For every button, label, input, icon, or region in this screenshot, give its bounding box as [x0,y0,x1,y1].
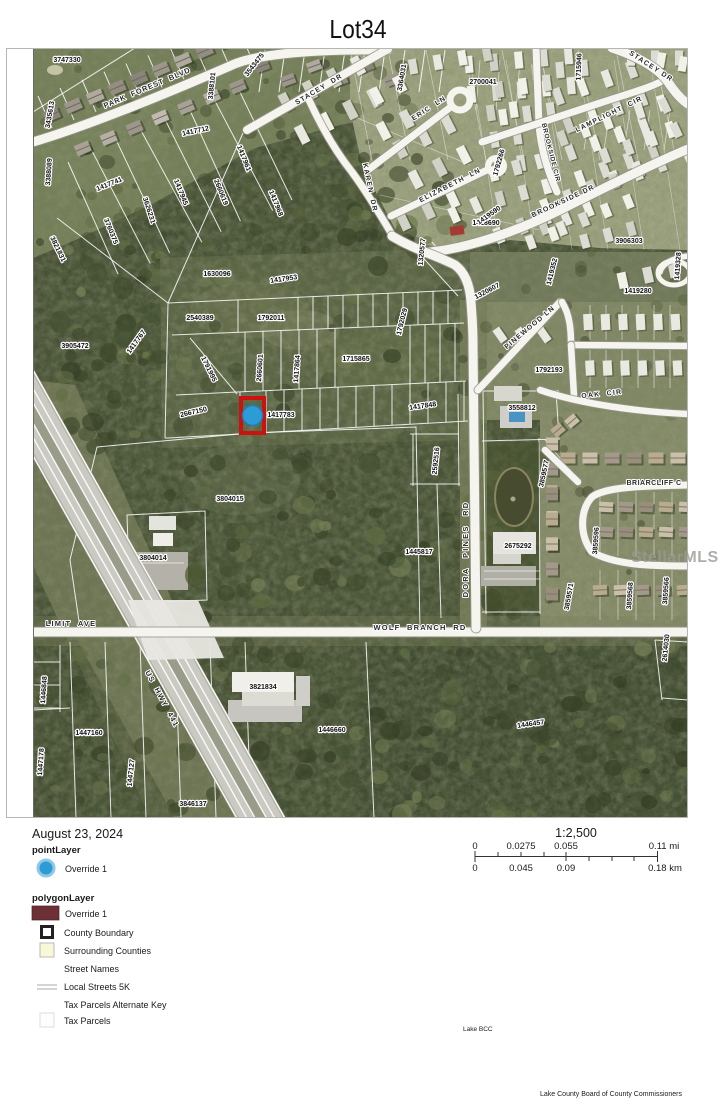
svg-text:0.045: 0.045 [509,863,533,874]
svg-text:3906303: 3906303 [615,238,642,245]
svg-text:3558812: 3558812 [508,405,535,412]
svg-text:0: 0 [472,863,477,874]
svg-text:1445817: 1445817 [405,549,432,556]
svg-text:1447160: 1447160 [75,730,102,737]
svg-text:3747330: 3747330 [53,57,80,64]
svg-text:1419280: 1419280 [624,288,651,295]
svg-text:LIMIT AVE: LIMIT AVE [46,619,97,628]
svg-text:2675292: 2675292 [504,543,531,550]
svg-text:0: 0 [472,841,477,852]
svg-text:pointLayer: pointLayer [32,845,81,856]
svg-text:DORA PINES RD: DORA PINES RD [461,501,470,598]
svg-text:1446660: 1446660 [318,727,345,734]
svg-text:3804015: 3804015 [216,496,243,503]
svg-text:Lake County Board of County Co: Lake County Board of County Commissioner… [540,1091,683,1098]
svg-text:WOLF BRANCH RD: WOLF BRANCH RD [374,623,467,632]
svg-text:Override 1: Override 1 [65,909,107,919]
svg-text:Lake BCC: Lake BCC [463,1026,493,1033]
svg-text:0.18 km: 0.18 km [648,863,682,874]
svg-text:2540389: 2540389 [186,315,213,322]
svg-text:Local Streets 5K: Local Streets 5K [64,982,130,992]
svg-text:1792011: 1792011 [258,315,285,322]
svg-text:Override 1: Override 1 [65,864,107,874]
svg-text:County Boundary: County Boundary [64,928,134,938]
svg-text:1:2,500: 1:2,500 [555,826,597,840]
svg-text:3821834: 3821834 [249,684,276,691]
svg-text:3846137: 3846137 [179,801,206,808]
svg-text:3905472: 3905472 [61,343,88,350]
svg-text:BRIARCLIFF C: BRIARCLIFF C [627,480,682,487]
svg-text:1715946: 1715946 [576,53,584,81]
svg-text:August 23, 2024: August 23, 2024 [32,827,123,841]
svg-text:1417783: 1417783 [267,412,294,419]
svg-text:1792193: 1792193 [535,367,562,374]
svg-text:0.0275: 0.0275 [506,841,535,852]
svg-text:0.09: 0.09 [557,863,576,874]
svg-text:Lot34: Lot34 [329,16,386,45]
svg-text:0.055: 0.055 [554,841,578,852]
svg-text:Street Names: Street Names [64,964,120,974]
svg-text:Tax Parcels Alternate Key: Tax Parcels Alternate Key [64,1000,167,1010]
svg-text:1630096: 1630096 [203,271,230,278]
svg-text:StellarMLS: StellarMLS [631,549,719,566]
svg-text:0.11 mi: 0.11 mi [649,841,679,852]
svg-text:3804014: 3804014 [139,555,166,562]
svg-text:Surrounding Counties: Surrounding Counties [64,946,152,956]
svg-text:Tax Parcels: Tax Parcels [64,1016,111,1026]
svg-text:polygonLayer: polygonLayer [32,893,95,904]
svg-text:1715865: 1715865 [342,356,369,363]
svg-text:2700041: 2700041 [469,79,496,86]
